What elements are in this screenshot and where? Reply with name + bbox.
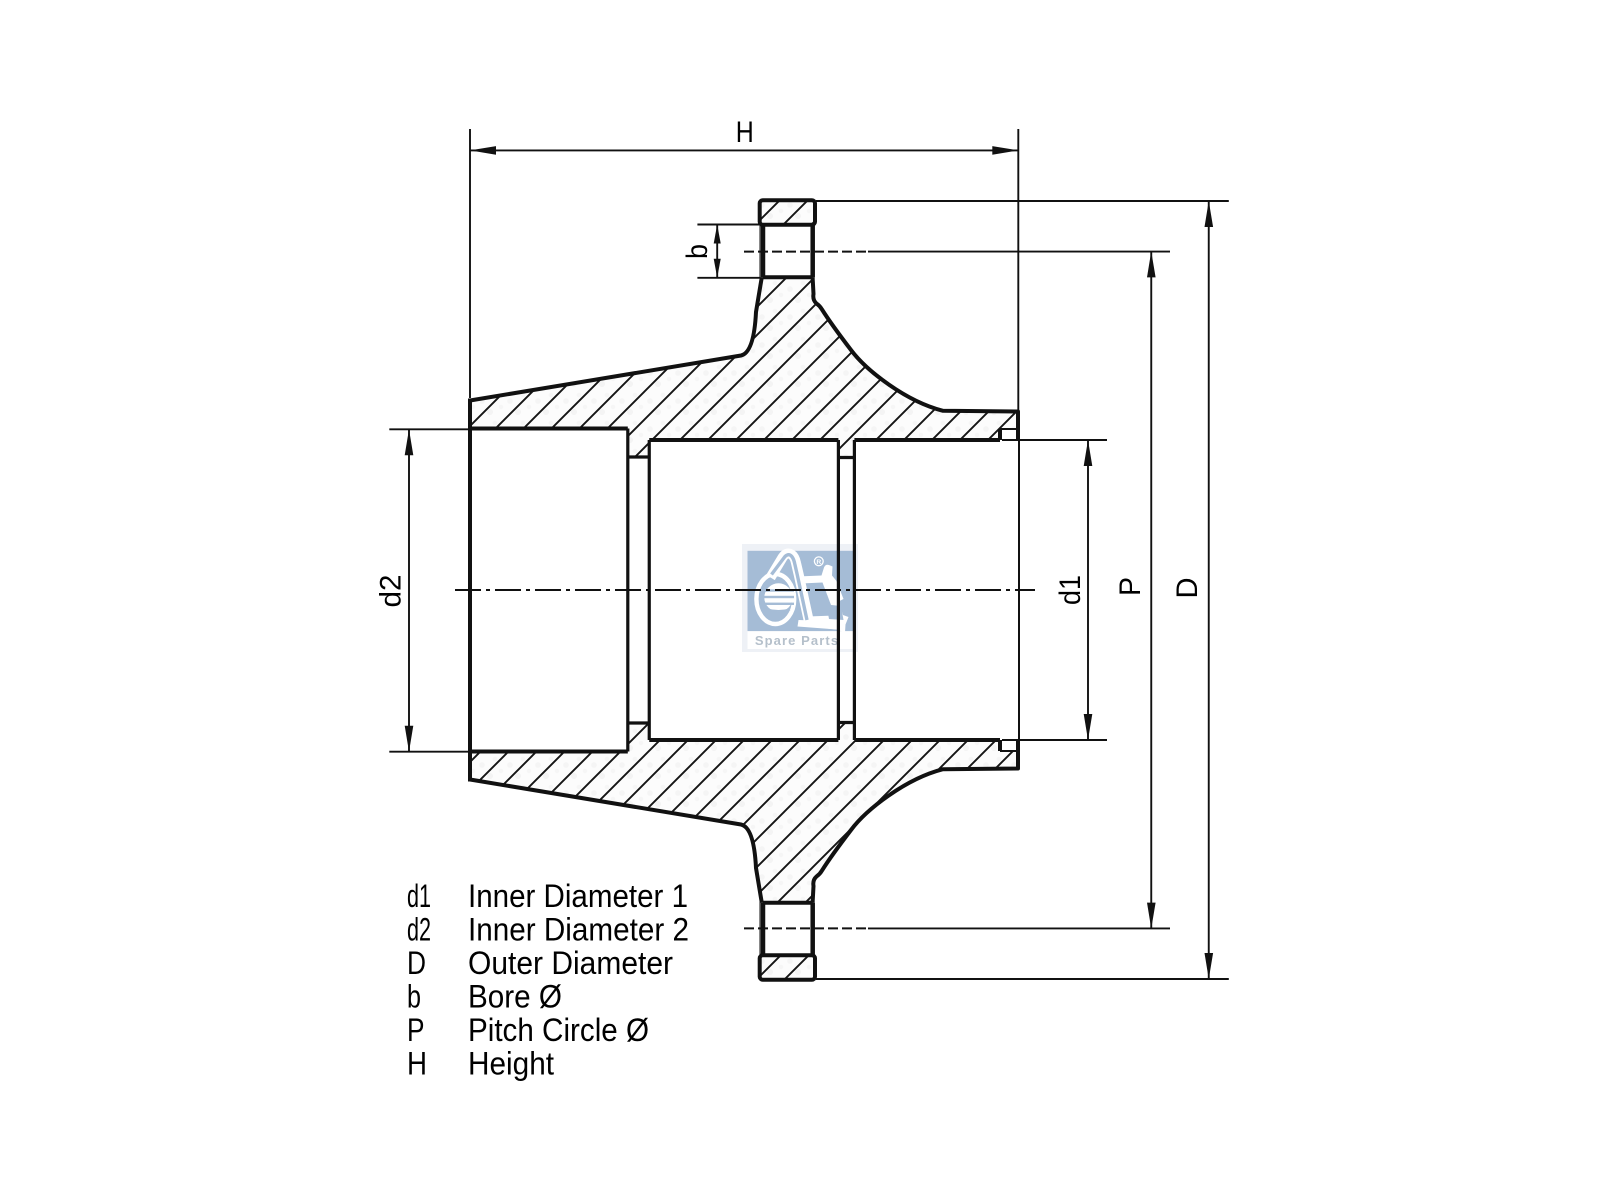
svg-text:P: P — [407, 1012, 425, 1048]
svg-text:b: b — [407, 979, 421, 1015]
svg-text:H: H — [407, 1046, 427, 1082]
svg-text:Inner Diameter 1: Inner Diameter 1 — [468, 878, 688, 914]
svg-text:D: D — [407, 945, 426, 981]
svg-text:Pitch Circle Ø: Pitch Circle Ø — [468, 1012, 649, 1048]
svg-text:b: b — [681, 244, 714, 259]
svg-text:R: R — [816, 559, 821, 566]
svg-text:P: P — [1114, 577, 1147, 596]
svg-text:Spare Parts: Spare Parts — [755, 633, 839, 648]
svg-text:d1: d1 — [407, 878, 431, 914]
svg-text:D: D — [1171, 578, 1204, 599]
svg-text:H: H — [736, 116, 754, 149]
svg-text:Height: Height — [468, 1046, 554, 1082]
svg-text:Bore Ø: Bore Ø — [468, 979, 562, 1015]
svg-text:d2: d2 — [407, 912, 431, 948]
svg-text:d2: d2 — [374, 575, 407, 608]
svg-text:Outer Diameter: Outer Diameter — [468, 945, 673, 981]
svg-text:d1: d1 — [1054, 575, 1087, 605]
svg-text:Inner Diameter 2: Inner Diameter 2 — [468, 912, 689, 948]
